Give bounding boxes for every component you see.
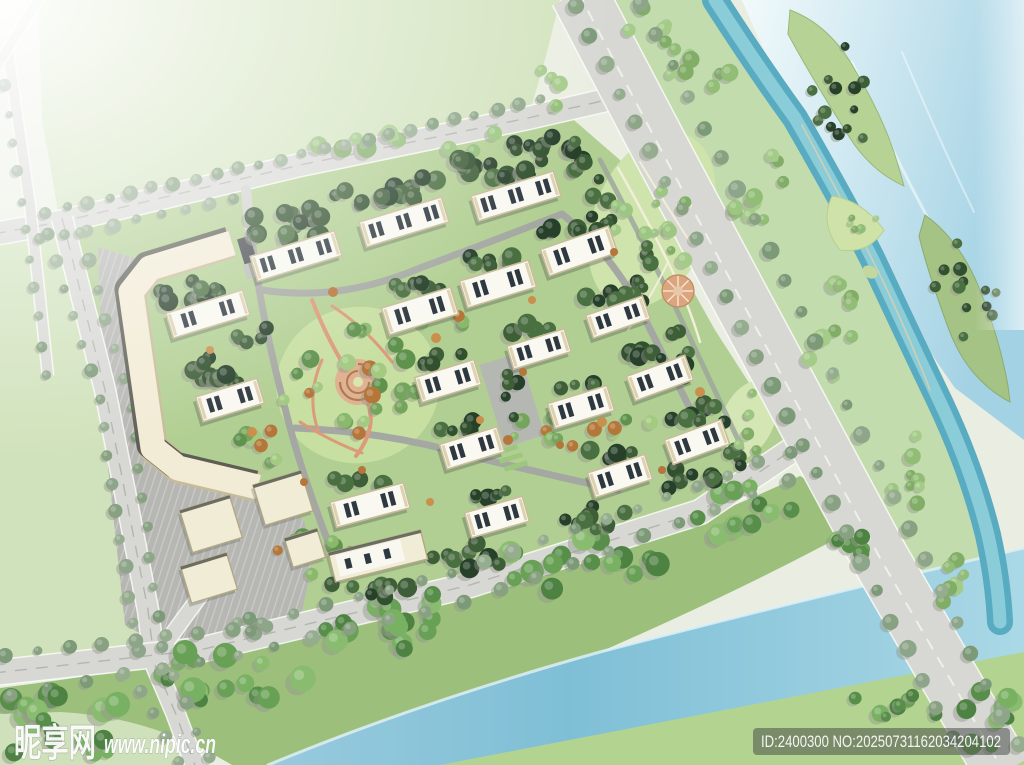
master-plan-image: 昵享网 www.nipic.cn ID:2400300 NO:202507311… <box>0 0 1024 765</box>
scene-root <box>0 0 1024 765</box>
watermark-site-url: www.nipic.cn <box>104 729 216 759</box>
site-plan-rendering: 昵享网 www.nipic.cn ID:2400300 NO:202507311… <box>0 0 1024 765</box>
id-badge-text: ID:2400300 NO:20250731162034204102 <box>761 732 1001 751</box>
right-edge-fade <box>975 0 1024 330</box>
watermark-site-name: 昵享网 <box>14 723 96 765</box>
corner-fade <box>0 0 720 540</box>
id-badge: ID:2400300 NO:20250731162034204102 <box>753 728 1010 755</box>
